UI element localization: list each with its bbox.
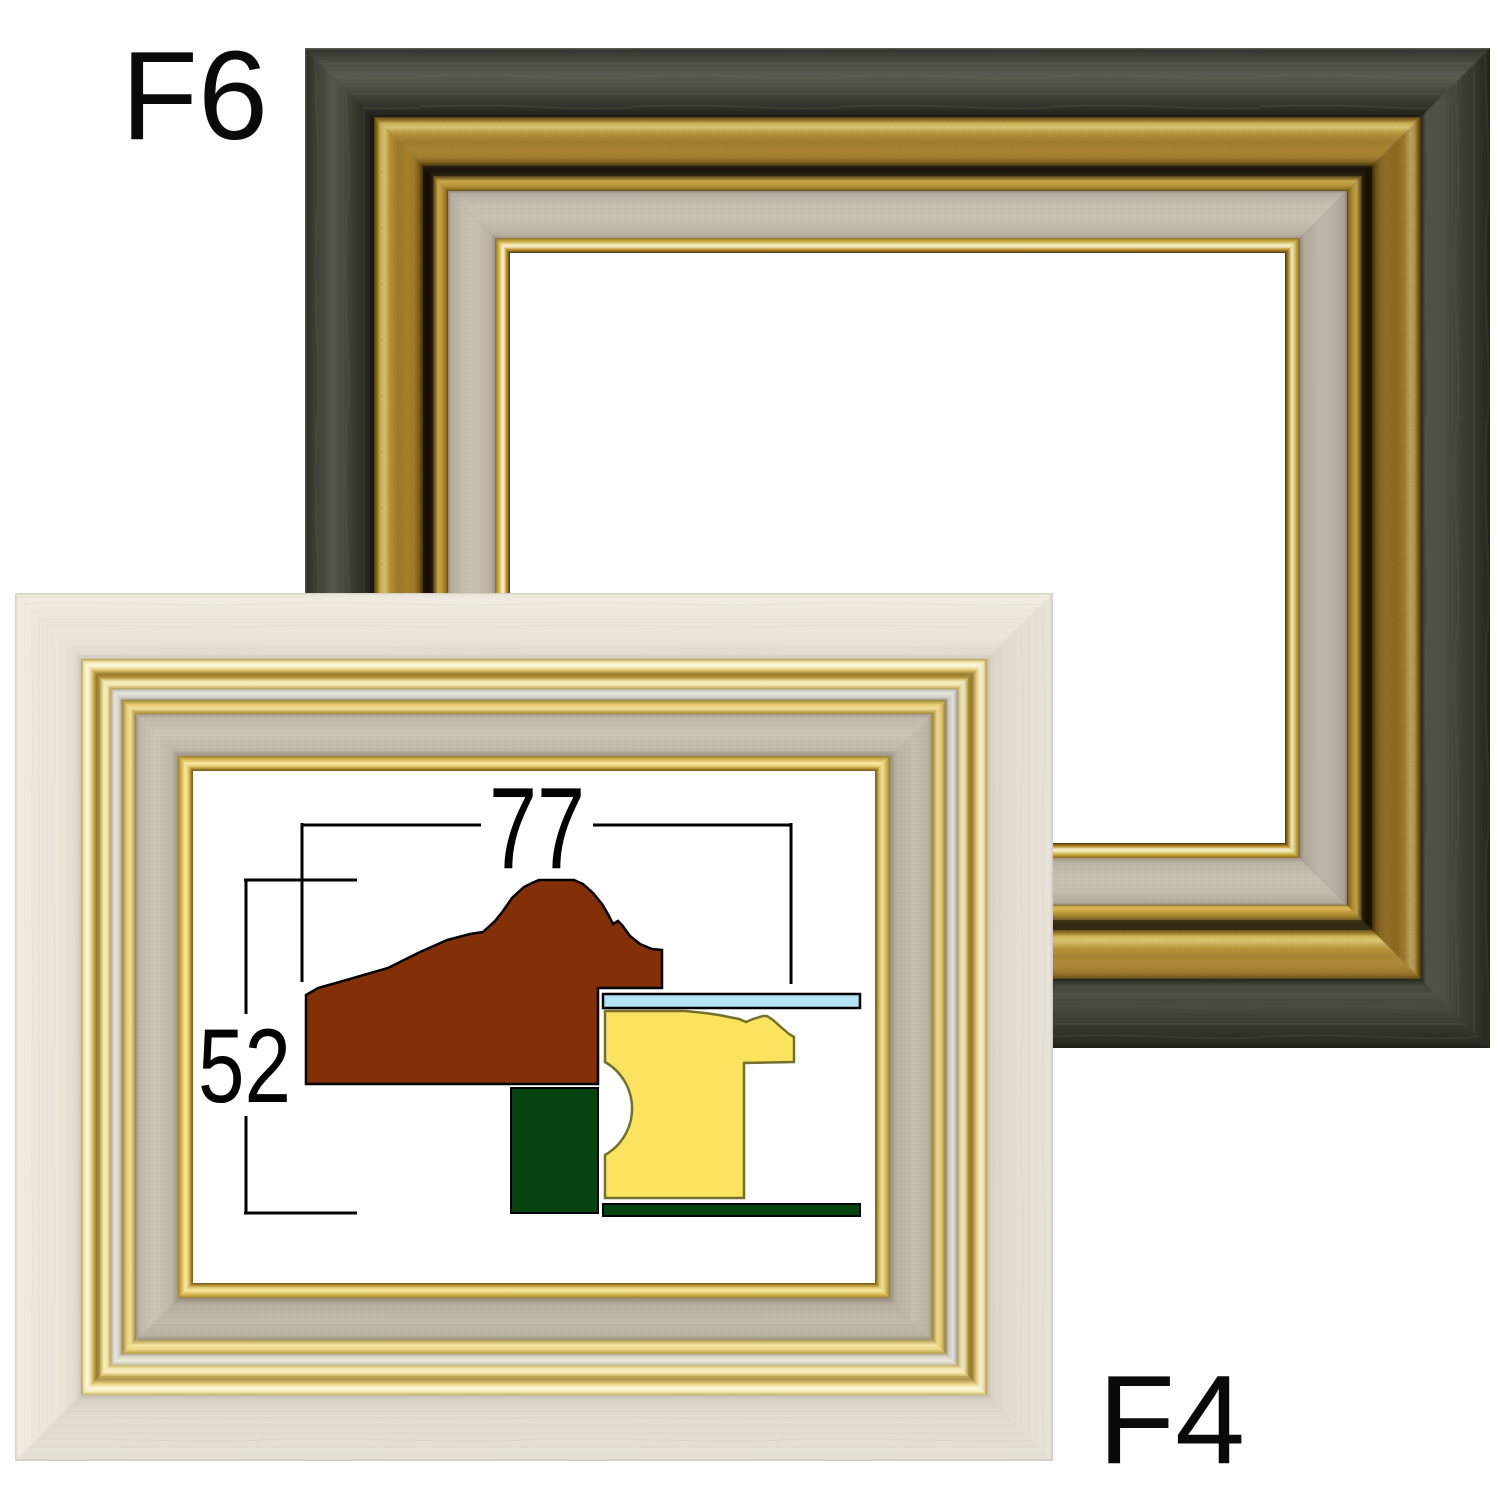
svg-text:52: 52: [198, 1008, 291, 1125]
svg-text:77: 77: [489, 763, 585, 893]
svg-text:F6: F6: [121, 25, 268, 166]
svg-text:F4: F4: [1098, 1349, 1245, 1490]
